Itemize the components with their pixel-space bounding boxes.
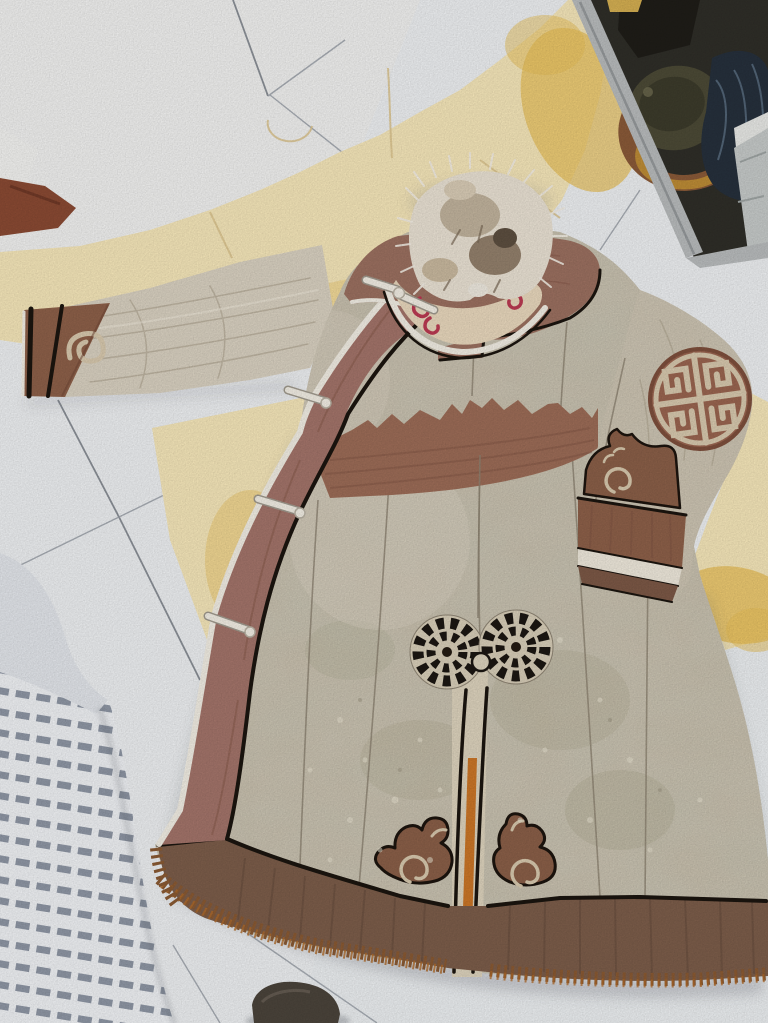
- photo-grain: [0, 0, 768, 1023]
- photo-stage: [0, 0, 768, 1023]
- photo: [0, 0, 768, 1023]
